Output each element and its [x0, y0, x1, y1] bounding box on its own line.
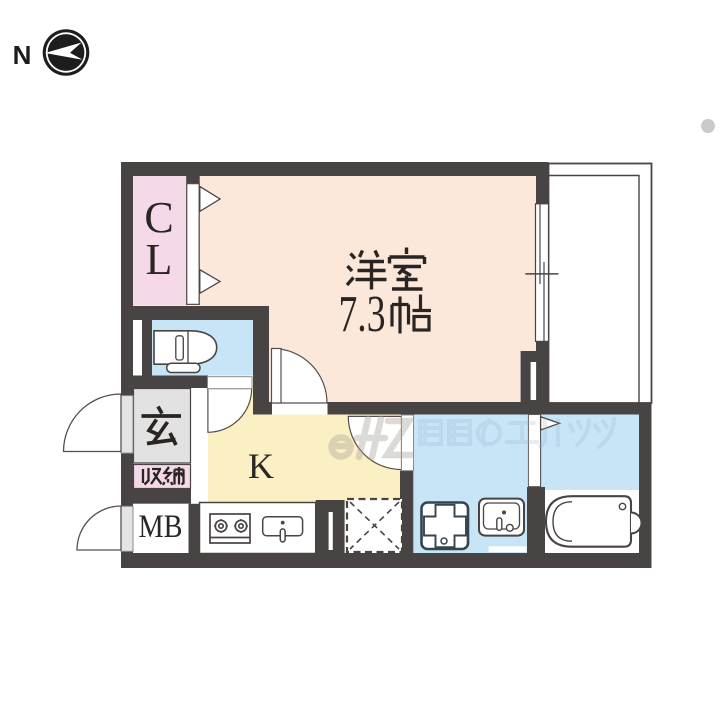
svg-text:N: N: [13, 40, 32, 70]
svg-text:K: K: [248, 446, 274, 486]
svg-text:7.3: 7.3: [339, 286, 386, 343]
svg-text:L: L: [146, 235, 173, 284]
svg-text:MB: MB: [139, 509, 183, 545]
